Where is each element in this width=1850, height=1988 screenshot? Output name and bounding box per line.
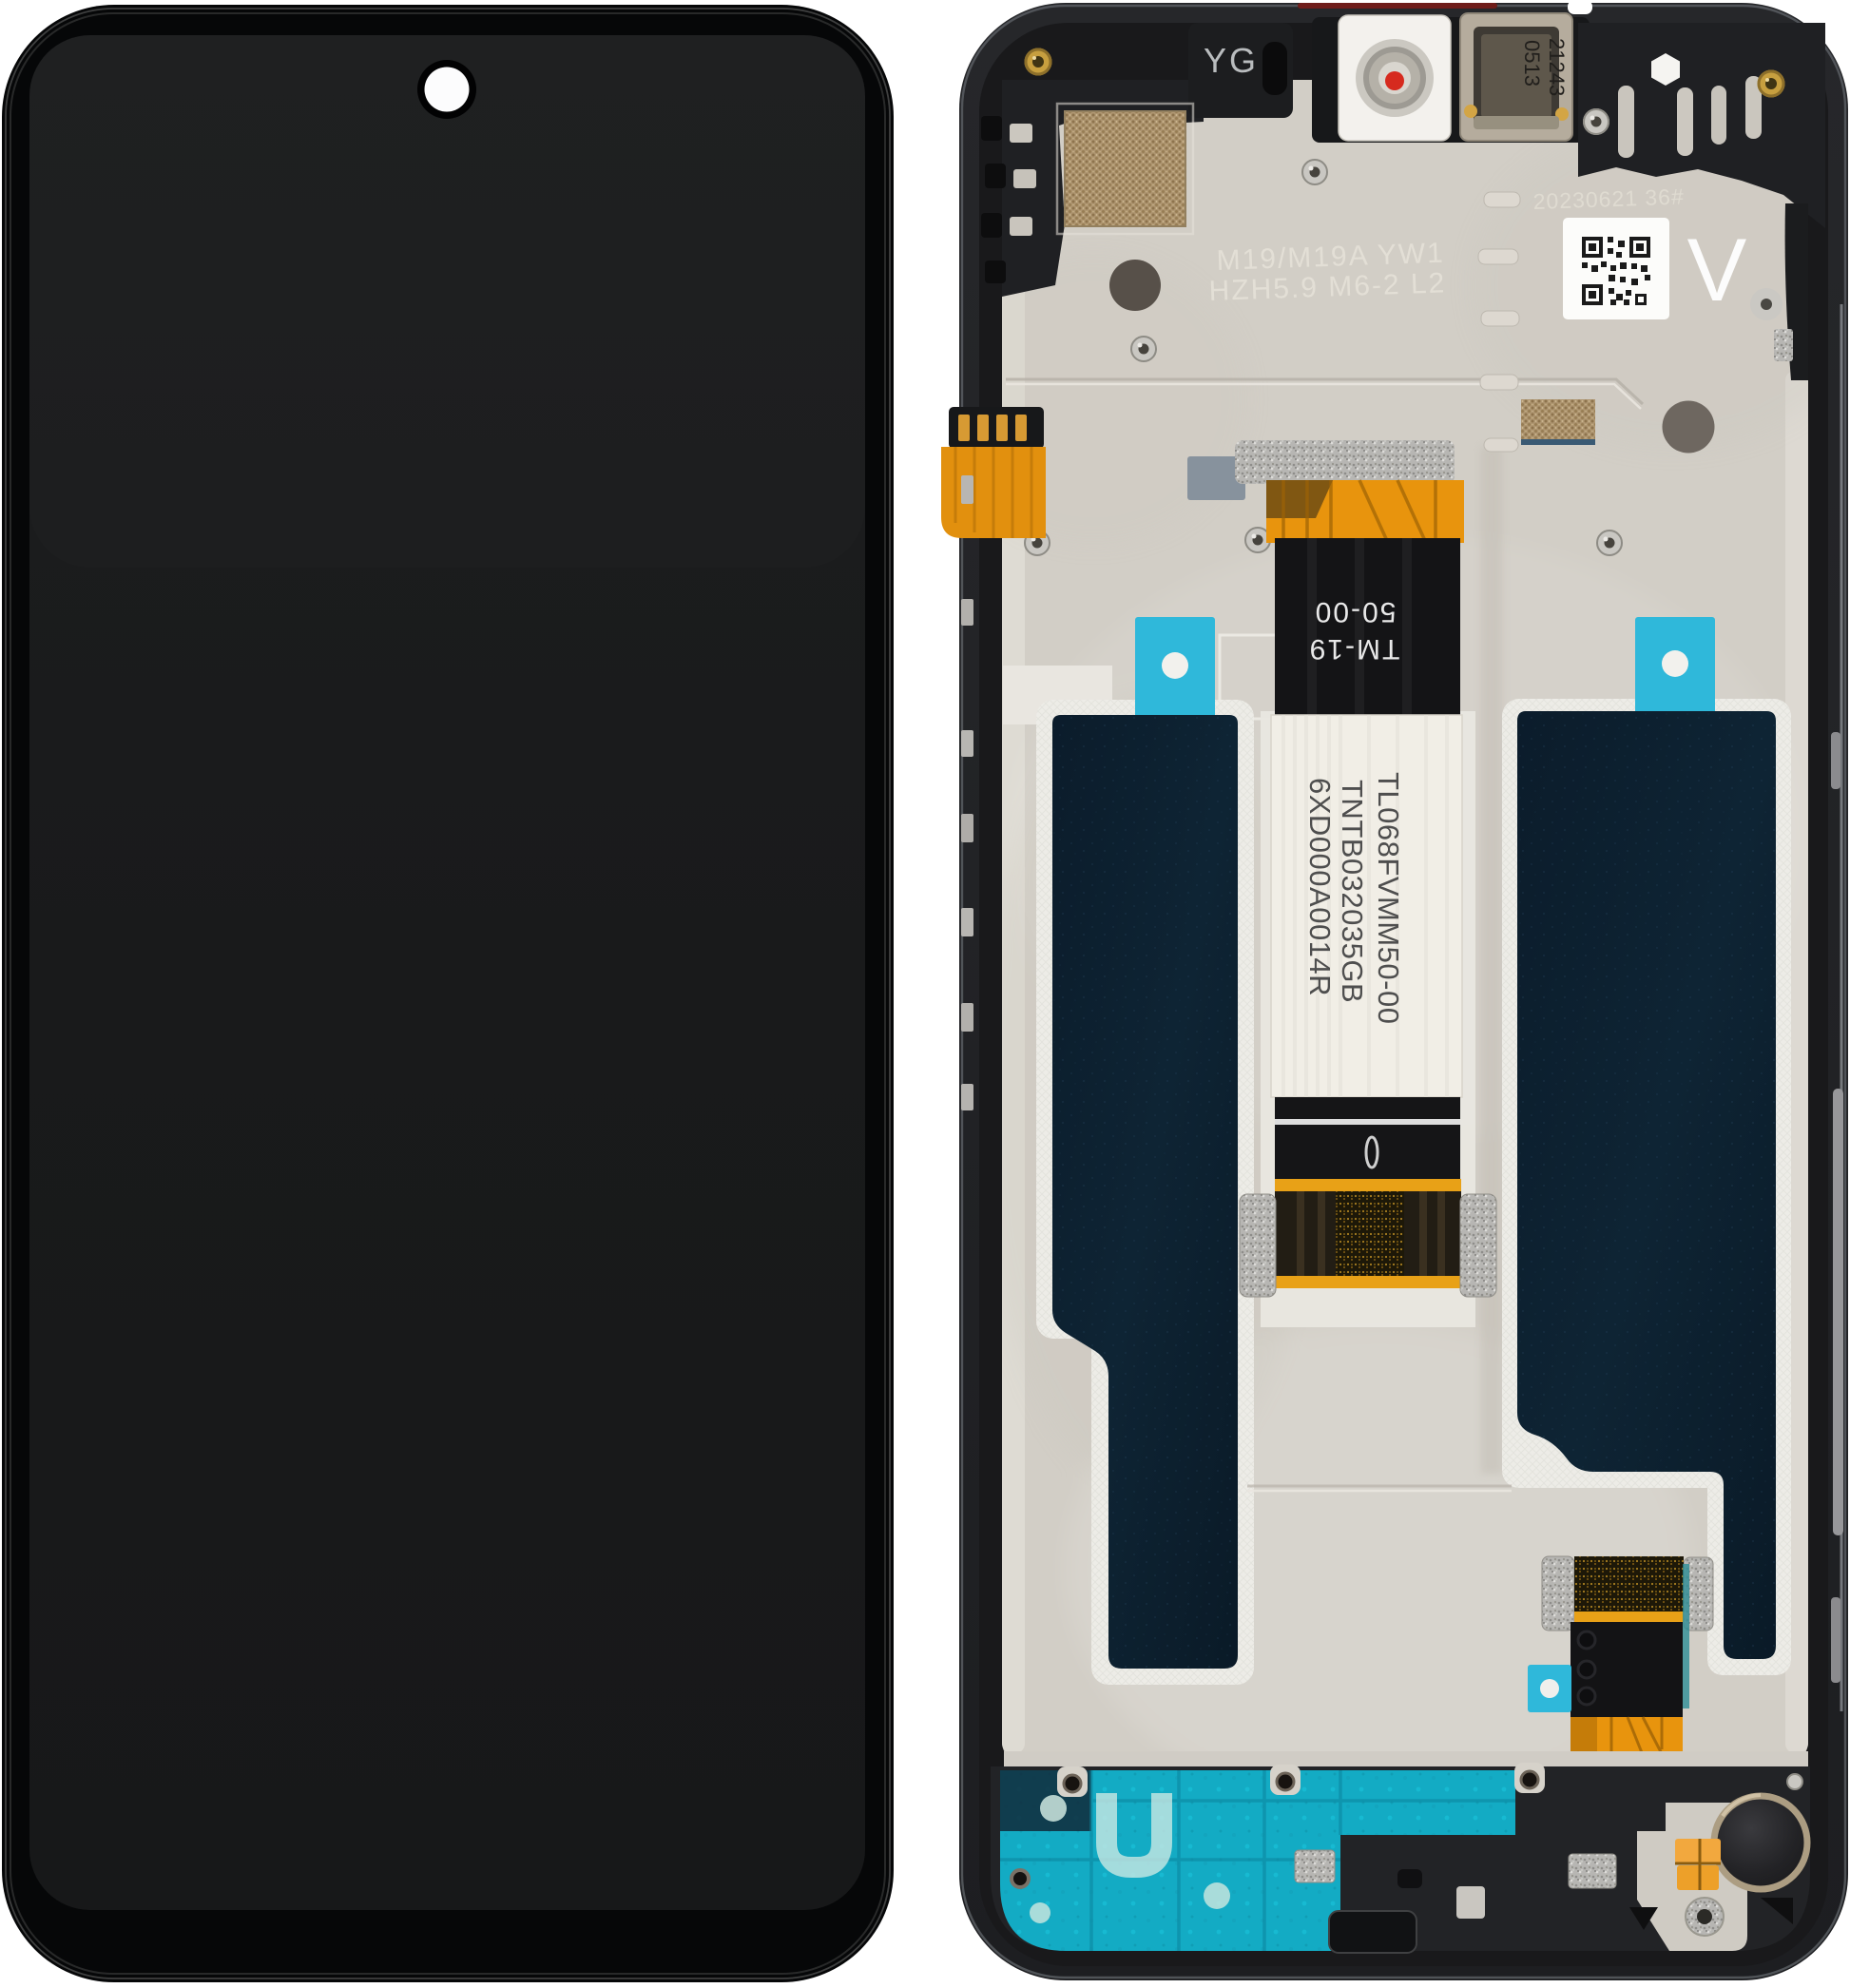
svg-text:0513: 0513	[1520, 40, 1544, 87]
svg-text:TL068FVMM50-00: TL068FVMM50-00	[1372, 772, 1405, 1024]
svg-text:21243: 21243	[1545, 38, 1569, 96]
svg-text:YG: YG	[1204, 41, 1259, 80]
svg-text:6XD000A0014R: 6XD000A0014R	[1303, 778, 1337, 996]
svg-text:TM-19: TM-19	[1308, 633, 1400, 665]
svg-text:V: V	[1687, 220, 1747, 319]
svg-text:TNTB032035GB: TNTB032035GB	[1336, 780, 1369, 1003]
svg-text:50-00: 50-00	[1314, 596, 1397, 627]
svg-text:20230621 36#: 20230621 36#	[1532, 183, 1685, 214]
